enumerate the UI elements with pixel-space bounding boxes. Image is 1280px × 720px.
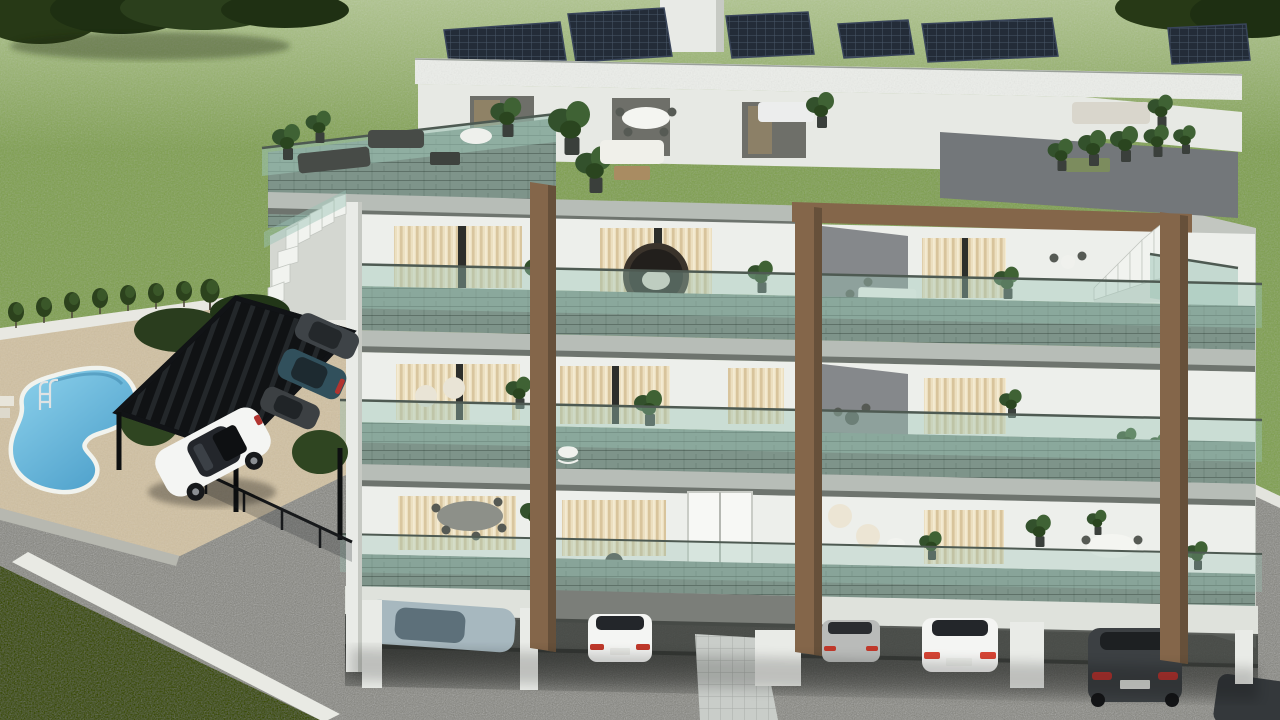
bronze-column-shade: [548, 185, 556, 652]
solar-array: [568, 8, 672, 62]
chair: [624, 128, 633, 137]
white-lounge-sofa: [600, 140, 664, 164]
wood-coffee-table: [614, 166, 650, 180]
coffee-table-dark: [430, 152, 460, 165]
outdoor-sofa-dark: [368, 130, 424, 148]
side-table: [460, 128, 492, 144]
solar-array: [726, 12, 814, 58]
solar-array: [838, 20, 914, 58]
chair: [668, 108, 677, 117]
pool-step: [0, 396, 14, 406]
chair: [1078, 252, 1087, 261]
green-bench: [1066, 158, 1110, 172]
chair: [1050, 254, 1059, 263]
roof-elevator-box-shade: [716, 0, 724, 52]
pool-step: [0, 408, 10, 418]
dining-table-white: [622, 107, 670, 129]
chair: [660, 128, 669, 137]
solar-array: [1168, 24, 1250, 64]
bistro-table: [1061, 255, 1075, 269]
aerial-render: [0, 0, 1280, 720]
render-canvas: [0, 0, 1280, 720]
white-sofa: [758, 102, 814, 122]
solar-array: [922, 18, 1058, 62]
car-silver-rear: [822, 620, 880, 662]
bronze-column-shade: [814, 207, 822, 656]
chair: [616, 108, 625, 117]
corner-pillar-shade: [358, 202, 362, 672]
cream-armchair: [828, 504, 852, 528]
sofa-right-wing: [1072, 102, 1150, 124]
cream-armchair: [443, 377, 465, 399]
bronze-column-shade: [1180, 215, 1188, 664]
